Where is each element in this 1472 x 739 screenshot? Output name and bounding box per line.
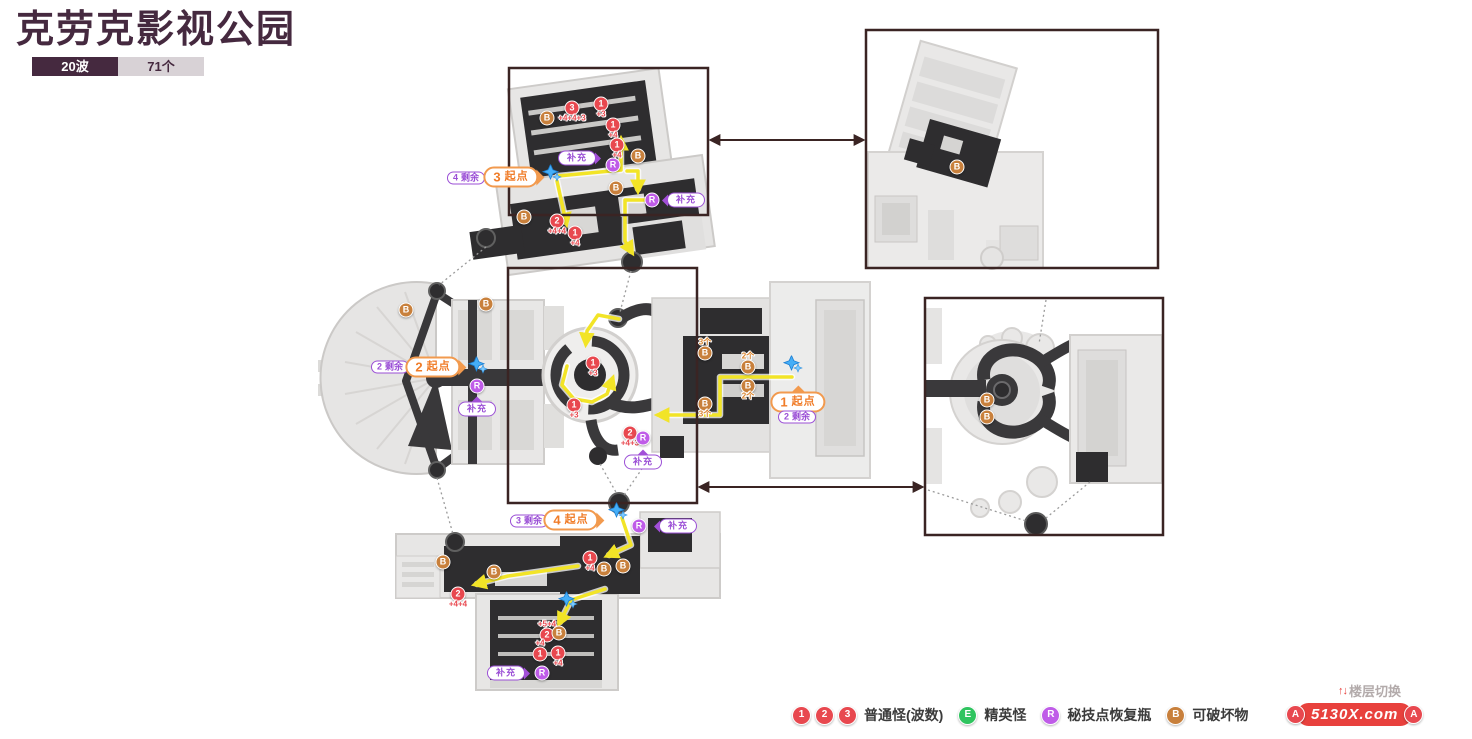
marker-count-label: +4 [535,640,544,648]
marker-breakable: B [552,626,567,641]
pill-label: 剩余 [792,413,810,422]
pill-label: 补充 [496,669,516,678]
refill-pill: 补充 [659,519,697,534]
pill-number: 2 [415,361,422,374]
marker-count-label: 3个 [699,411,711,419]
pill-number: 1 [780,396,787,409]
marker-breakable: B [950,160,965,175]
marker-count-label: +3 [596,111,605,119]
pill-number: 3 [493,171,500,184]
marker-count-label: +4 [585,565,594,573]
legend-item: R秘技点恢复瓶 [1041,705,1151,725]
marker-breakable: B2个 [741,379,756,394]
marker-count-label: 2个 [742,353,754,361]
marker-breakable: B [399,303,414,318]
marker-wave-1: 1+4 [583,551,598,566]
marker-count-label: +4+4+3 [558,115,585,123]
marker-count-label: +4+4 [449,601,467,609]
site-watermark: 5130X.com [1297,703,1412,726]
page-title: 克劳克影视公园 [16,8,296,54]
screenshot-root: 克劳克影视公园 20波 71个 B3+4+4+31+31+41+4RBBRB2+… [0,0,1472,739]
pill-number: 2 [784,413,789,422]
pill-label: 补充 [467,405,487,414]
marker-breakable: B [540,111,555,126]
pill-arrow-icon [662,194,668,206]
pill-arrow-icon [459,359,467,375]
marker-breakable: B [631,149,646,164]
marker-breakable: B3个 [698,397,713,412]
legend-item: 123普通怪(波数) [792,705,943,725]
remain-pill: 3剩余 [510,515,548,528]
pill-label: 补充 [668,522,688,531]
start-sparkle-icon [558,592,578,615]
marker-wave-2: 2+4+4 [451,587,466,602]
marker-breakable: B [479,297,494,312]
pill-arrow-icon [637,450,649,456]
marker-count-label: +4+4 [548,228,566,236]
pill-label: 起点 [505,172,529,183]
legend-label: 秘技点恢复瓶 [1067,705,1151,725]
legend-label: 可破坏物 [1192,705,1248,725]
marker-technique-bottle: R [535,666,550,681]
marker-wave-2: 2+4+4 [550,214,565,229]
marker-breakable: B3个 [698,346,713,361]
remain-pill: 2剩余 [371,361,409,374]
legend-marker-R-icon: R [1041,706,1060,725]
pill-arrow-icon [790,386,806,394]
remain-pill: 4剩余 [447,172,485,185]
refill-pill: 补充 [667,193,705,208]
legend-marker-3-icon: 3 [838,706,857,725]
start-sparkle-icon [468,357,488,380]
pill-label: 补充 [567,154,587,163]
marker-breakable: B [436,555,451,570]
pill-number: 3 [516,517,521,526]
pill-arrow-icon [524,667,530,679]
legend-item: B可破坏物 [1166,705,1248,725]
marker-technique-bottle: R [632,519,647,534]
marker-technique-bottle: R [470,379,485,394]
marker-wave-3: 3+4+4+3 [565,101,580,116]
pill-label: 补充 [676,196,696,205]
floor-switch-watermark: ↑↓ 楼层切换 A 5130X.com A [1286,681,1423,726]
marker-technique-bottle: R [636,431,651,446]
marker-breakable: B [980,410,995,425]
legend-item: E精英怪 [958,705,1026,725]
marker-count-label: +3 [569,412,578,420]
pill-label: 剩余 [524,517,542,526]
marker-count-label: 3个 [699,339,711,347]
legend-marker-E-icon: E [958,706,977,725]
refill-pill: 补充 [558,151,596,166]
pill-number: 4 [553,514,560,527]
start-sparkle-icon [783,356,803,379]
start-pill: 1起点 [770,392,825,413]
floor-switch-row: ↑↓ 楼层切换 [1338,681,1423,700]
floor-marker-a-icon: A [1286,705,1305,724]
floor-switch-icon: ↑↓ [1338,685,1347,697]
refill-pill: 补充 [458,402,496,417]
floor-marker-a-icon: A [1404,705,1423,724]
marker-count-label: 2个 [742,393,754,401]
marker-wave-1: 1+3 [567,398,582,413]
start-pill: 4起点 [543,510,598,531]
legend: 123普通怪(波数)E精英怪R秘技点恢复瓶B可破坏物 [792,705,1248,725]
marker-wave-1: 1+4 [568,226,583,241]
marker-wave-1: 1+3 [594,97,609,112]
floor-switch-label: 楼层切换 [1349,681,1401,700]
pill-label: 剩余 [461,174,479,183]
legend-label: 精英怪 [984,705,1026,725]
pill-arrow-icon [595,152,601,164]
marker-count-label: +4 [553,660,562,668]
pill-label: 剩余 [385,363,403,372]
refill-pill: 补充 [624,455,662,470]
start-sparkle-icon [608,503,628,526]
marker-count-label: +4 [570,240,579,248]
pill-number: 2 [377,363,382,372]
refill-pill: 补充 [487,666,525,681]
legend-marker-1-icon: 1 [792,706,811,725]
pill-label: 起点 [427,362,451,373]
wave-count-badge: 20波 [32,57,118,77]
pill-number: 4 [453,174,458,183]
legend-marker-2-icon: 2 [815,706,834,725]
legend-marker-B-icon: B [1166,706,1185,725]
legend-label: 普通怪(波数) [864,705,943,725]
marker-breakable: B [980,393,995,408]
marker-wave-1: 1+4 [551,646,566,661]
start-pill: 2起点 [405,357,460,378]
pill-label: 补充 [633,458,653,467]
start-pill: 3起点 [483,167,538,188]
floor-marker-row: A 5130X.com A [1286,703,1423,726]
header: 克劳克影视公园 20波 71个 [16,8,296,76]
marker-wave-1: 1+4 [533,647,548,662]
badge-row: 20波 71个 [32,57,296,77]
pill-label: 起点 [792,397,816,408]
pill-arrow-icon [597,512,605,528]
marker-wave-1: 1+3 [586,356,601,371]
pill-arrow-icon [471,397,483,403]
marker-technique-bottle: R [645,193,660,208]
marker-wave-1: 1+4 [610,138,625,153]
remain-pill: 2剩余 [778,411,816,424]
marker-technique-bottle: R [606,158,621,173]
marker-breakable: B2个 [741,360,756,375]
start-sparkle-icon [542,165,562,188]
marker-wave-1: 1+4 [606,118,621,133]
enemy-count-badge: 71个 [118,57,204,77]
marker-breakable: B [487,565,502,580]
marker-count-label: +3 [588,370,597,378]
marker-breakable: B [609,181,624,196]
marker-breakable: B [597,562,612,577]
marker-breakable: B [517,210,532,225]
marker-breakable: B [616,559,631,574]
map-annotations: B3+4+4+31+31+41+4RBBRB2+4+41+41+31+32+4+… [0,0,1472,739]
pill-label: 起点 [565,515,589,526]
pill-arrow-icon [654,520,660,532]
